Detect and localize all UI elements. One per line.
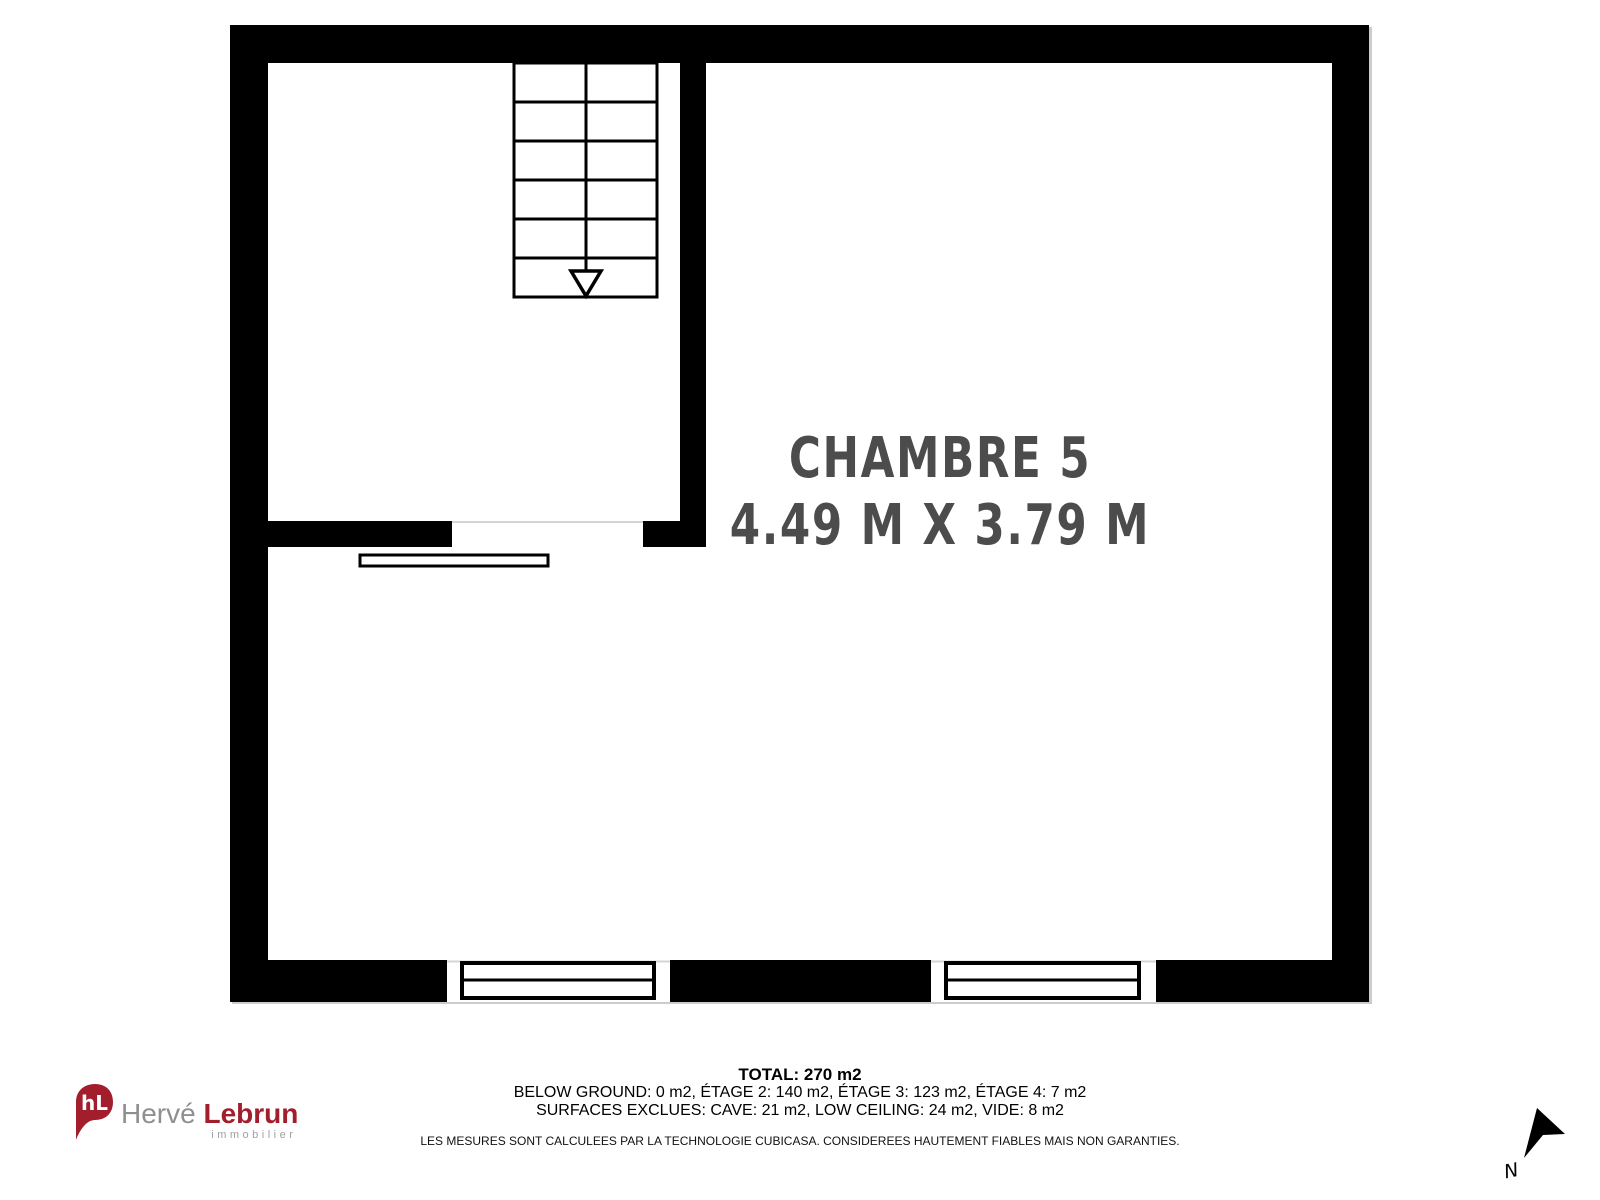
area-summary: TOTAL: 270 m2 BELOW GROUND: 0 m2, ÉTAGE … <box>200 1066 1400 1148</box>
logo-first-name: Hervé <box>121 1098 196 1129</box>
logo-mark: hL <box>75 1083 115 1143</box>
outer-wall-right <box>1332 25 1369 1002</box>
balustrade <box>360 555 548 566</box>
floor-plan-canvas: N <box>0 0 1600 1200</box>
room-name: CHAMBRE 5 <box>706 425 1174 492</box>
excluded-areas: SURFACES EXCLUES: CAVE: 21 m2, LOW CEILI… <box>200 1102 1400 1120</box>
logo-monogram: hL <box>81 1091 108 1115</box>
floor-areas: BELOW GROUND: 0 m2, ÉTAGE 2: 140 m2, ÉTA… <box>200 1084 1400 1102</box>
interior-wall-horizontal-right <box>643 521 706 547</box>
interior-wall-horizontal-left <box>268 521 452 547</box>
north-arrow-icon <box>1524 1108 1565 1158</box>
interior-walls <box>268 63 706 547</box>
measurement-disclaimer: LES MESURES SONT CALCULEES PAR LA TECHNO… <box>200 1134 1400 1148</box>
shadow-right <box>1369 27 1372 1004</box>
room-dimensions: 4.49 M X 3.79 M <box>706 492 1174 559</box>
interior-wall-vertical <box>680 63 706 547</box>
total-area: TOTAL: 270 m2 <box>200 1066 1400 1084</box>
stairs <box>514 63 657 297</box>
north-label: N <box>1502 1159 1520 1183</box>
compass: N <box>1502 1108 1565 1183</box>
outer-wall-top <box>230 25 1369 63</box>
outer-wall-bottom <box>230 960 1369 1002</box>
room-label-block: CHAMBRE 5 4.49 M X 3.79 M <box>706 425 1174 559</box>
outer-wall-left <box>230 25 268 1002</box>
stair-direction-down-icon <box>571 271 601 296</box>
